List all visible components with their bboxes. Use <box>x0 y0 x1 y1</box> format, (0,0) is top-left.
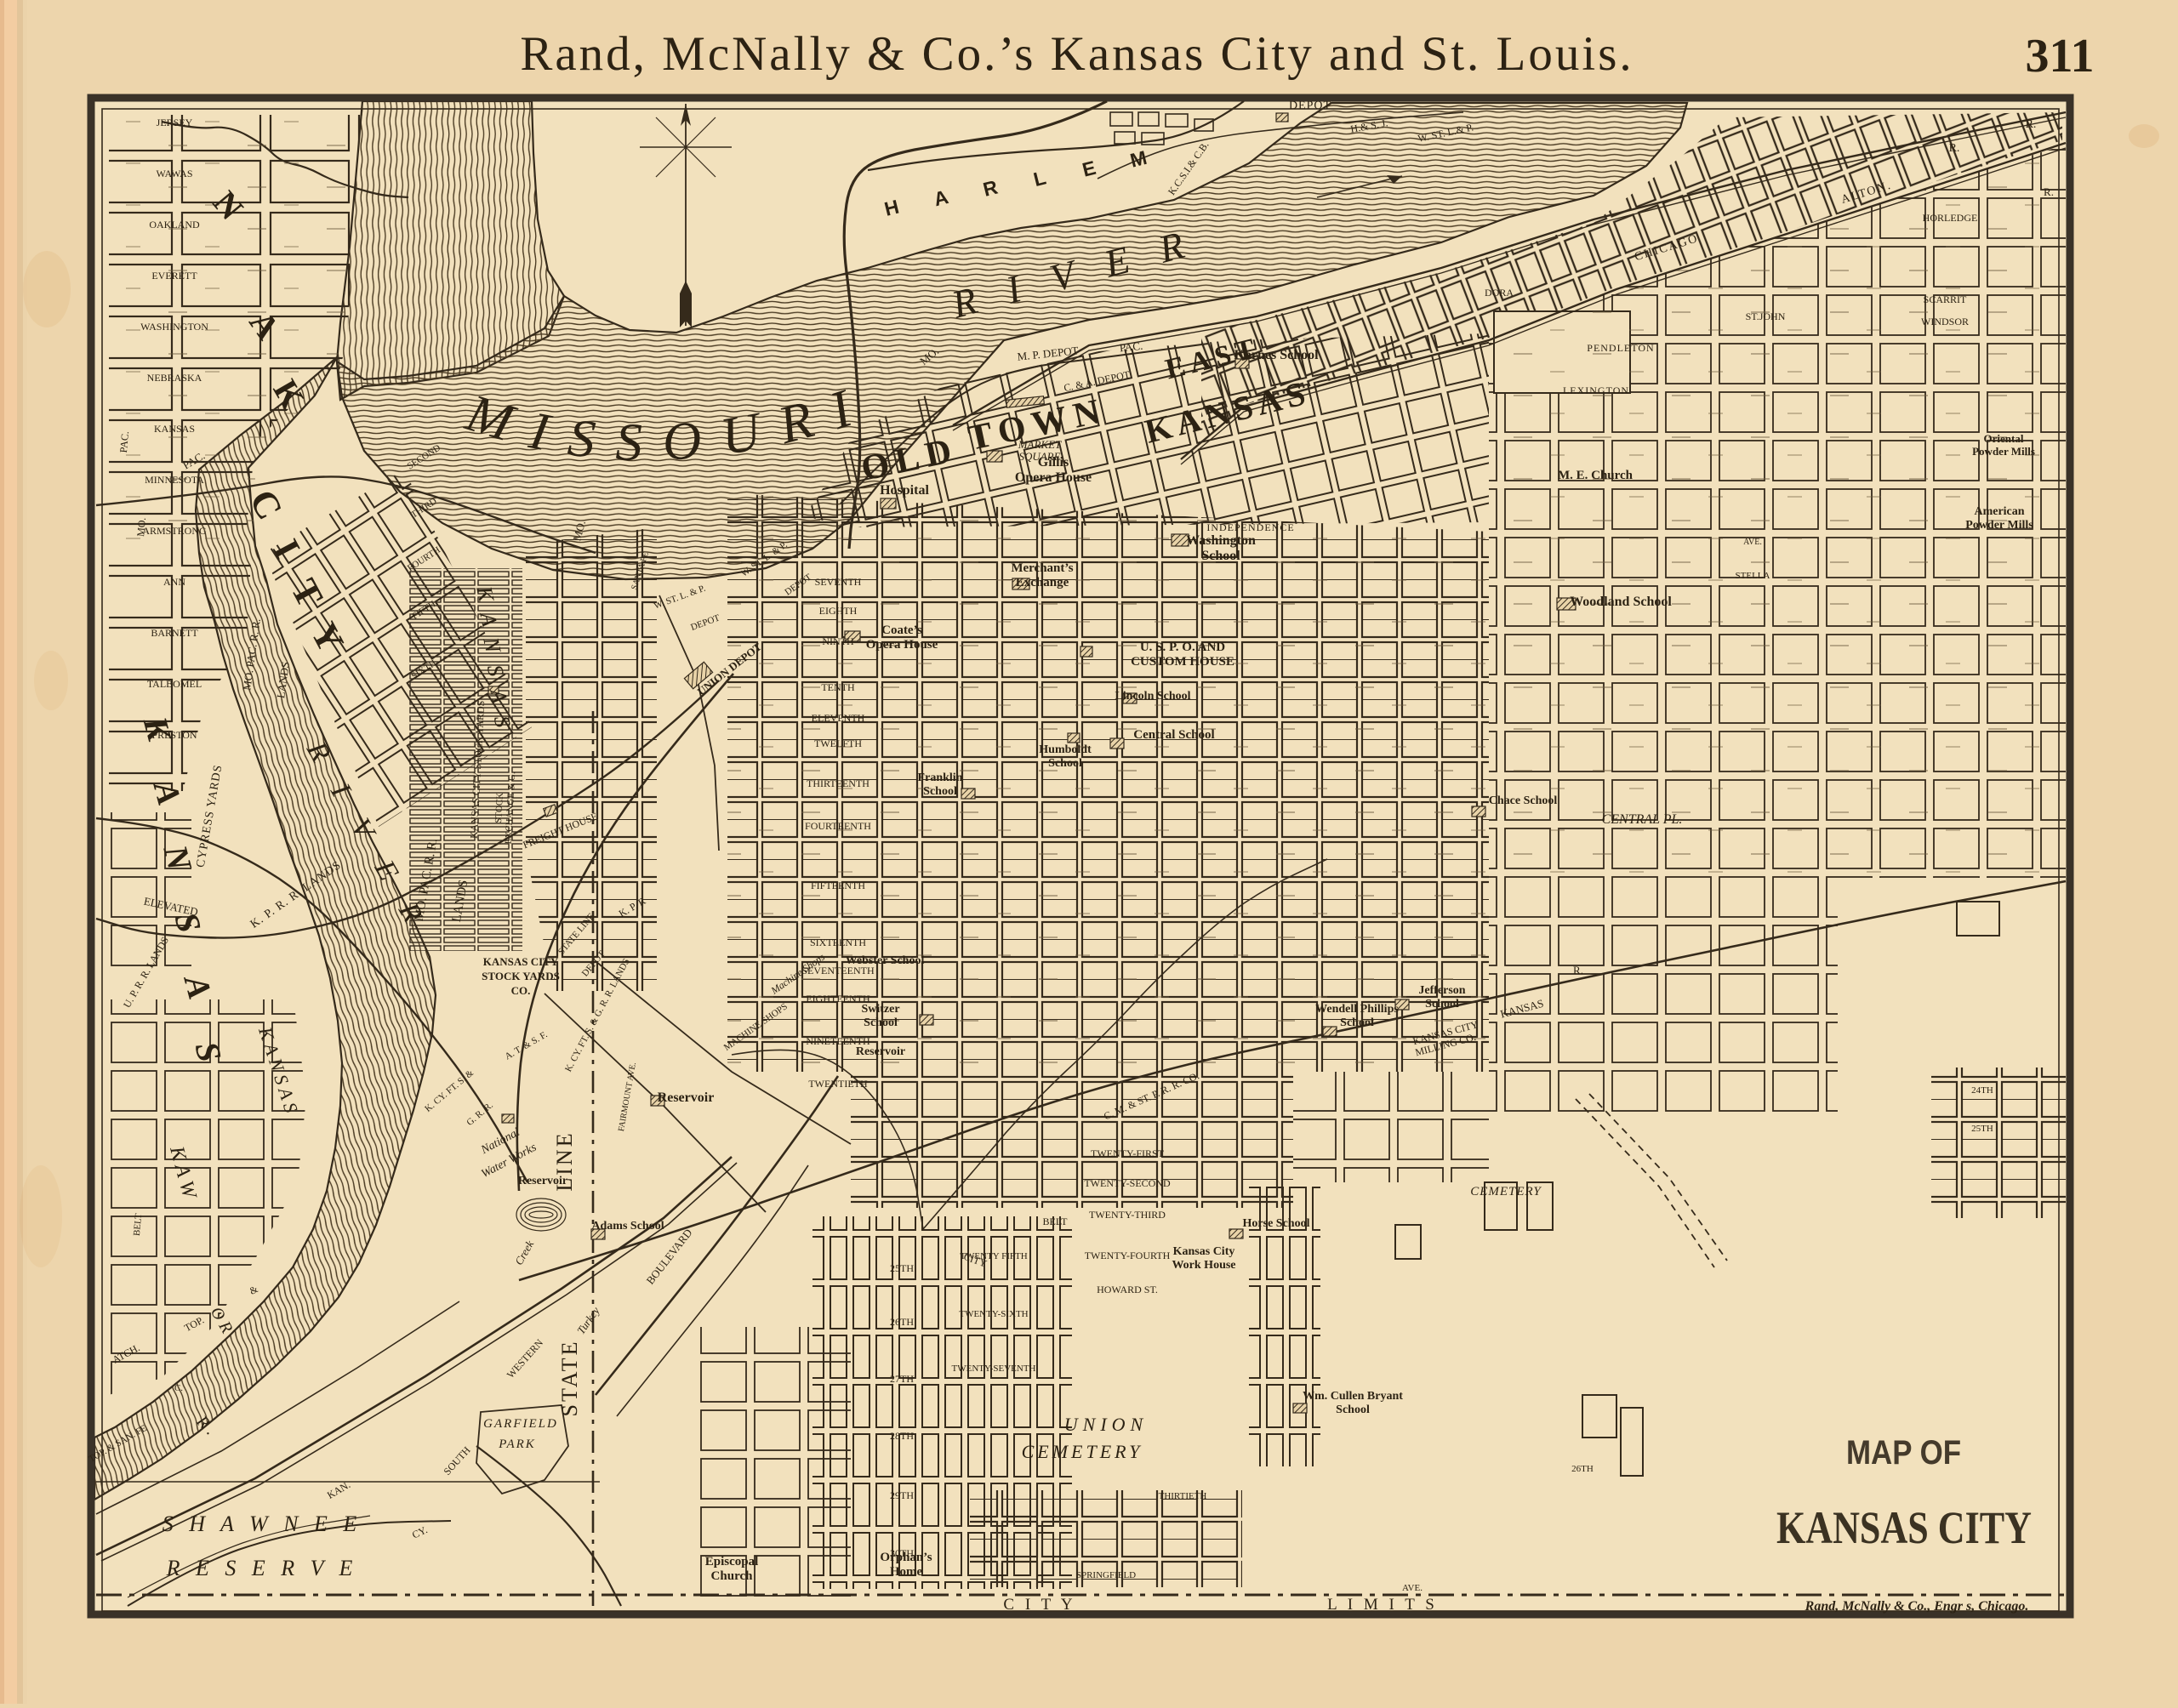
svg-text:School: School <box>923 785 957 798</box>
svg-text:BARNETT: BARNETT <box>151 627 198 639</box>
svg-text:Wm. Cullen Bryant: Wm. Cullen Bryant <box>1303 1390 1403 1403</box>
svg-text:TWENTY-SIXTH: TWENTY-SIXTH <box>959 1309 1028 1319</box>
svg-text:FOURTEENTH: FOURTEENTH <box>805 820 871 832</box>
svg-text:Home: Home <box>890 1565 923 1579</box>
svg-text:School: School <box>1425 998 1459 1011</box>
svg-text:WASHINGTON: WASHINGTON <box>140 321 208 333</box>
svg-text:Work House: Work House <box>1172 1259 1235 1272</box>
svg-text:Opera House: Opera House <box>1015 470 1092 485</box>
svg-text:ST.JOHN: ST.JOHN <box>1746 310 1786 322</box>
svg-text:PAC.: PAC. <box>1119 339 1143 355</box>
svg-text:DORA: DORA <box>1485 287 1514 299</box>
svg-text:Church: Church <box>711 1569 754 1583</box>
svg-text:C.: C. <box>174 1383 183 1393</box>
svg-text:26TH: 26TH <box>1571 1464 1594 1474</box>
svg-text:26TH: 26TH <box>890 1316 914 1328</box>
svg-text:SPRINGFIELD: SPRINGFIELD <box>1076 1570 1136 1580</box>
svg-text:PARK: PARK <box>498 1438 536 1451</box>
svg-text:HOWARD ST.: HOWARD ST. <box>1097 1284 1158 1295</box>
svg-text:R.: R. <box>1949 142 1960 155</box>
svg-text:AVE.: AVE. <box>1402 1583 1423 1593</box>
svg-text:PRESTON: PRESTON <box>151 729 197 741</box>
svg-text:Powder Mills: Powder Mills <box>1972 445 2035 458</box>
svg-text:THIRTIETH: THIRTIETH <box>1159 1491 1207 1501</box>
svg-text:CEMETERY: CEMETERY <box>1022 1441 1143 1462</box>
svg-text:FIFTEENTH: FIFTEENTH <box>811 880 865 891</box>
svg-text:Reservoir: Reservoir <box>856 1045 905 1058</box>
svg-text:SIXTEENTH: SIXTEENTH <box>810 937 866 948</box>
svg-text:WAWAS: WAWAS <box>156 168 192 179</box>
svg-text:STOCK: STOCK <box>493 793 505 823</box>
svg-text:School: School <box>1340 1016 1374 1029</box>
svg-text:STELLA: STELLA <box>1736 571 1770 581</box>
svg-text:SEVENTEENTH: SEVENTEENTH <box>801 965 875 976</box>
svg-text:TWENTY-THIRD: TWENTY-THIRD <box>1089 1209 1166 1221</box>
svg-text:Switzer: Switzer <box>861 1003 899 1016</box>
svg-text:CENTRAL PL.: CENTRAL PL. <box>1602 812 1683 827</box>
svg-text:27TH: 27TH <box>890 1373 914 1385</box>
svg-text:GARFIELD: GARFIELD <box>483 1417 558 1431</box>
svg-text:School: School <box>1336 1403 1370 1416</box>
svg-text:M. E. Church: M. E. Church <box>1558 469 1633 482</box>
svg-text:TWENTY-FOURTH: TWENTY-FOURTH <box>1085 1250 1171 1261</box>
svg-text:Central School: Central School <box>1133 728 1214 742</box>
svg-text:R.: R. <box>1573 964 1583 976</box>
svg-text:Woodland School: Woodland School <box>1570 595 1672 609</box>
svg-text:29TH: 29TH <box>890 1489 914 1501</box>
svg-text:TALBOMEL: TALBOMEL <box>147 678 202 690</box>
svg-text:Reservoir: Reservoir <box>518 1175 567 1187</box>
svg-text:LEXINGTON: LEXINGTON <box>1563 384 1629 396</box>
svg-text:PENDLETON: PENDLETON <box>1587 342 1654 354</box>
svg-text:KANSAS CITY: KANSAS CITY <box>483 955 559 968</box>
svg-text:Wendell Phillips: Wendell Phillips <box>1315 1003 1399 1016</box>
svg-text:Franklin: Franklin <box>918 771 963 784</box>
svg-text:STOCK YARDS: STOCK YARDS <box>482 970 560 982</box>
svg-text:Rand, McNally & Co.’s Kansas C: Rand, McNally & Co.’s Kansas City and St… <box>520 27 1633 81</box>
svg-text:PAC.: PAC. <box>117 430 131 453</box>
svg-text:Oriental: Oriental <box>1984 432 2024 445</box>
svg-text:28TH: 28TH <box>890 1430 914 1442</box>
svg-text:NEBRASKA: NEBRASKA <box>147 372 202 384</box>
svg-text:25TH: 25TH <box>890 1262 914 1274</box>
svg-text:TENTH: TENTH <box>821 681 855 693</box>
svg-text:Merchant’s: Merchant’s <box>1011 561 1073 575</box>
svg-text:Reservoir: Reservoir <box>658 1090 715 1105</box>
svg-text:TWELFTH: TWELFTH <box>814 737 862 749</box>
svg-text:R E S E R V E: R E S E R V E <box>166 1556 358 1580</box>
svg-text:Rand, McNally & Co., Engr s, C: Rand, McNally & Co., Engr s, Chicago. <box>1805 1599 2029 1614</box>
svg-text:American: American <box>1974 505 2024 518</box>
svg-text:SCARRIT: SCARRIT <box>1924 293 1967 305</box>
svg-text:Washington: Washington <box>1186 533 1256 548</box>
svg-text:TWENTY-SEVENTH: TWENTY-SEVENTH <box>952 1364 1036 1374</box>
svg-text:School: School <box>1048 757 1082 770</box>
svg-text:CO.: CO. <box>511 984 531 997</box>
svg-text:EIGHTEENTH: EIGHTEENTH <box>806 993 870 1005</box>
svg-text:Powder Mills: Powder Mills <box>1965 519 2033 532</box>
svg-text:AVE.: AVE. <box>1743 538 1762 547</box>
svg-text:Karnes School: Karnes School <box>1234 348 1319 362</box>
svg-text:School: School <box>864 1016 898 1029</box>
svg-text:Hospital: Hospital <box>880 483 929 498</box>
svg-text:R.: R. <box>2044 185 2054 198</box>
svg-text:C I T Y: C I T Y <box>1003 1596 1075 1614</box>
svg-text:MAP OF: MAP OF <box>1846 1434 1961 1472</box>
svg-text:TWENTIETH: TWENTIETH <box>808 1078 868 1090</box>
svg-text:TWENTY-SECOND: TWENTY-SECOND <box>1084 1177 1171 1189</box>
svg-text:MARKET: MARKET <box>1018 438 1062 451</box>
svg-text:EVERETT: EVERETT <box>151 270 197 282</box>
svg-text:DEPOT: DEPOT <box>1289 100 1331 112</box>
svg-text:WINDSOR: WINDSOR <box>1921 316 1969 327</box>
svg-text:30TH: 30TH <box>890 1547 914 1559</box>
svg-text:STATE: STATE <box>557 1340 582 1417</box>
svg-text:MINNESOTA: MINNESOTA <box>145 474 204 486</box>
svg-text:Coate’s: Coate’s <box>881 623 922 637</box>
svg-text:S H A W N E E: S H A W N E E <box>162 1512 362 1536</box>
svg-text:CUSTOM HOUSE: CUSTOM HOUSE <box>1131 655 1234 669</box>
svg-text:U. S. P. O. AND: U. S. P. O. AND <box>1140 640 1225 654</box>
svg-text:ARMSTRONG: ARMSTRONG <box>142 525 207 537</box>
svg-text:CEMETERY: CEMETERY <box>1470 1185 1542 1198</box>
svg-text:Jefferson: Jefferson <box>1418 984 1465 997</box>
svg-text:HORLEDGE: HORLEDGE <box>1923 212 1978 224</box>
svg-text:BELT: BELT <box>1043 1216 1069 1227</box>
svg-text:School: School <box>1201 549 1240 563</box>
svg-text:311: 311 <box>2026 30 2095 83</box>
svg-text:NINTH: NINTH <box>822 635 854 647</box>
svg-text:Adams School: Adams School <box>591 1220 664 1233</box>
svg-text:Episcopal: Episcopal <box>705 1555 759 1569</box>
svg-text:SEVENTH: SEVENTH <box>815 576 862 588</box>
svg-text:TWENTY-FIRST: TWENTY-FIRST <box>1091 1147 1165 1159</box>
svg-text:Opera House: Opera House <box>866 638 938 652</box>
svg-text:Horse School: Horse School <box>1243 1217 1310 1230</box>
svg-text:Humboldt: Humboldt <box>1039 743 1092 756</box>
svg-text:JERSEY: JERSEY <box>157 117 193 128</box>
svg-text:Chace School: Chace School <box>1489 794 1558 807</box>
svg-text:ANN: ANN <box>163 576 185 588</box>
svg-text:Lincoln School: Lincoln School <box>1115 690 1190 703</box>
svg-text:KANSAS CITY: KANSAS CITY <box>1776 1502 2032 1553</box>
svg-text:UNION: UNION <box>1064 1414 1148 1435</box>
svg-text:NINETEENTH: NINETEENTH <box>806 1035 870 1047</box>
svg-text:INDEPENDENCE: INDEPENDENCE <box>1206 521 1294 533</box>
svg-text:OAKLAND: OAKLAND <box>149 219 200 231</box>
svg-text:THIRTEENTH: THIRTEENTH <box>807 777 869 789</box>
svg-text:ELEVENTH: ELEVENTH <box>812 712 865 724</box>
svg-text:Exchange: Exchange <box>1016 576 1069 589</box>
svg-text:L I M I T S: L I M I T S <box>1327 1596 1438 1614</box>
svg-text:SQUARE: SQUARE <box>1018 450 1060 463</box>
svg-text:Kansas City: Kansas City <box>1173 1245 1235 1258</box>
svg-text:KANSAS: KANSAS <box>154 423 195 435</box>
svg-text:BELT: BELT <box>132 1213 144 1237</box>
svg-text:R.: R. <box>2026 118 2037 131</box>
svg-text:EIGHTH: EIGHTH <box>819 605 858 617</box>
svg-text:24TH: 24TH <box>1971 1085 1993 1096</box>
svg-text:25TH: 25TH <box>1971 1124 1993 1134</box>
svg-text:TWENTY FIFTH: TWENTY FIFTH <box>960 1251 1027 1261</box>
